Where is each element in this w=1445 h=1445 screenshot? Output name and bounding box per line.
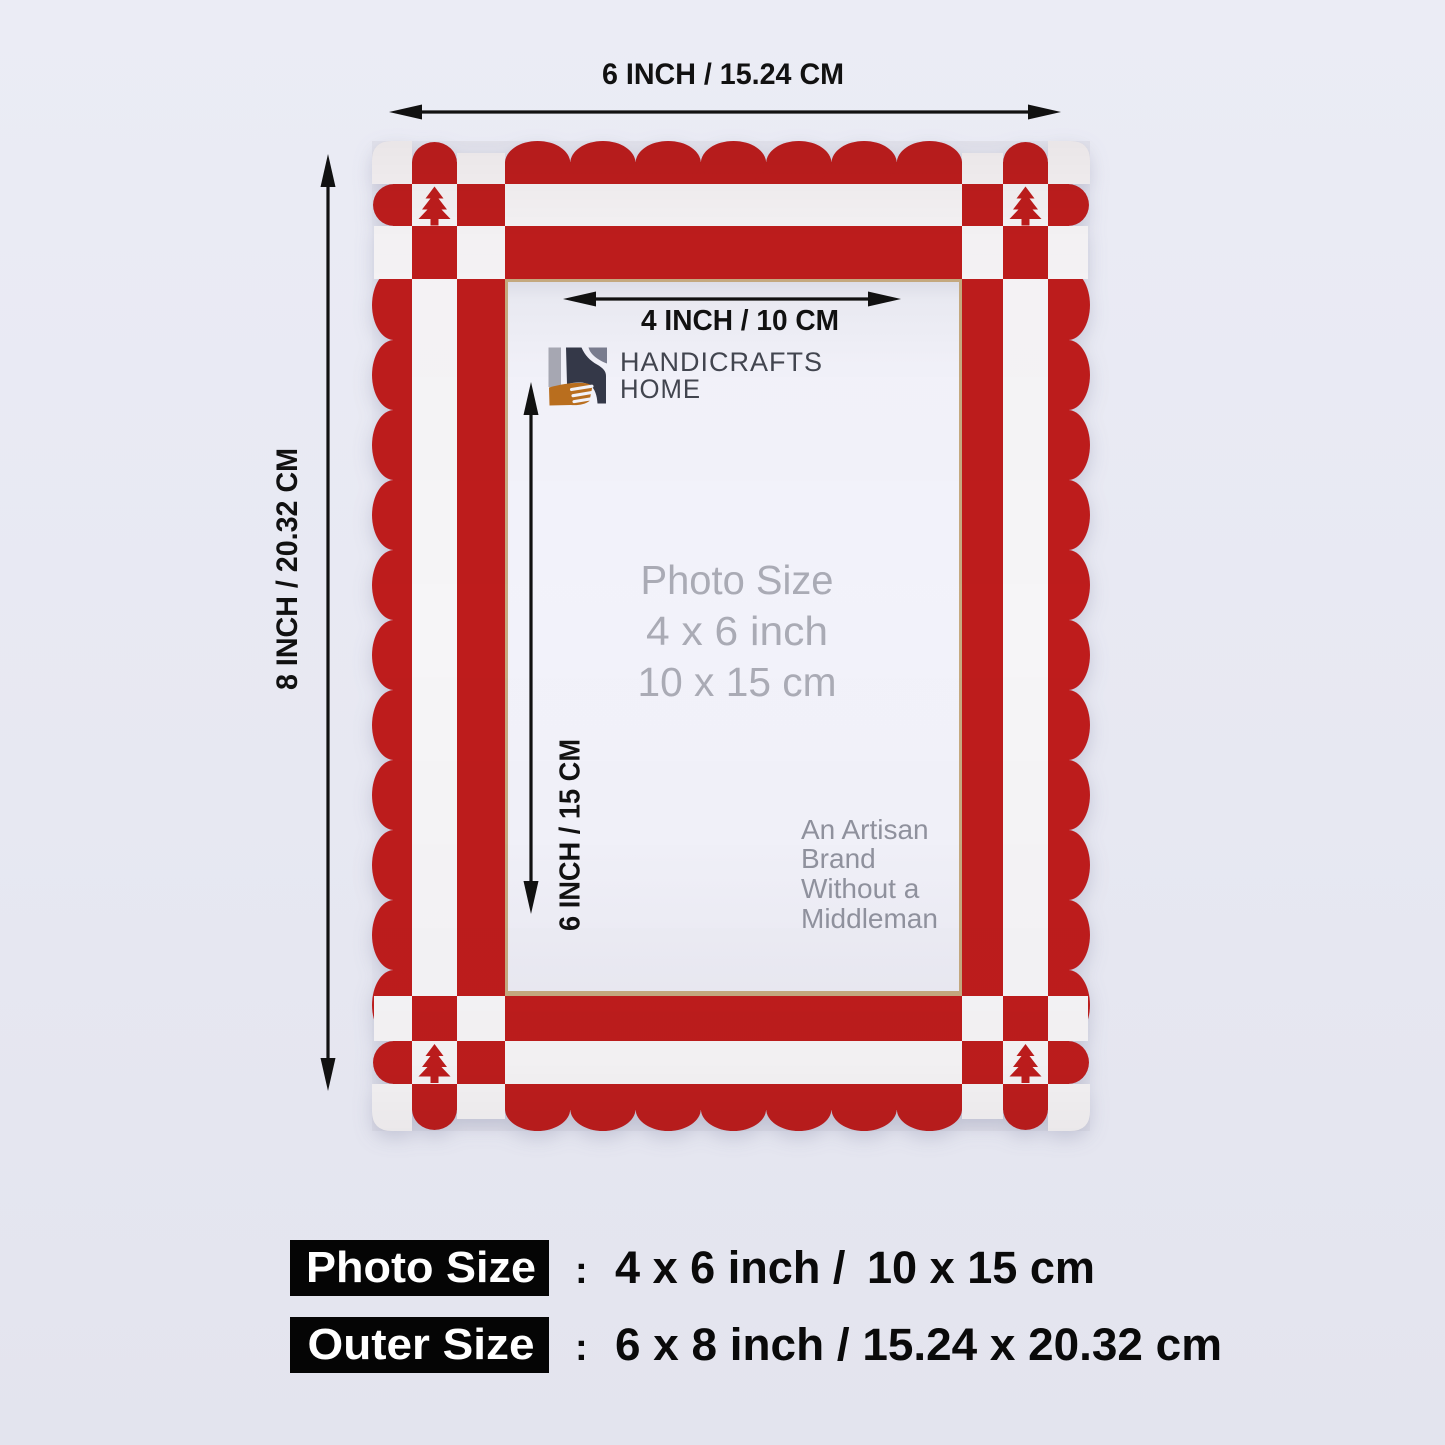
svg-text:Photo Size: Photo Size [306,1243,536,1292]
svg-text:10 x 15 cm: 10 x 15 cm [638,659,837,705]
svg-text:Photo Size: Photo Size [641,557,834,603]
svg-text:HOME: HOME [620,374,701,404]
svg-text:Middleman: Middleman [801,903,938,934]
svg-text:An Artisan: An Artisan [801,814,929,845]
svg-text:6 x 8 inch / 15.24 x 20.32 cm: 6 x 8 inch / 15.24 x 20.32 cm [615,1319,1222,1370]
svg-text:HANDICRAFTS: HANDICRAFTS [620,347,823,377]
svg-text:Without a: Without a [801,873,920,904]
svg-text:Brand: Brand [801,843,876,874]
svg-text:Outer Size: Outer Size [308,1320,535,1369]
svg-text:4 x 6 inch / 10 x 15 cm: 4 x 6 inch / 10 x 15 cm [615,1242,1095,1293]
svg-text:4 INCH / 10 CM: 4 INCH / 10 CM [641,305,839,337]
svg-text:6 INCH / 15 CM: 6 INCH / 15 CM [555,739,587,931]
svg-text:4 x 6 inch: 4 x 6 inch [646,608,828,654]
svg-text::: : [575,1327,588,1369]
svg-text:8 INCH / 20.32 CM: 8 INCH / 20.32 CM [271,448,304,690]
svg-text::: : [575,1250,588,1292]
svg-text:6 INCH / 15.24 CM: 6 INCH / 15.24 CM [602,58,844,91]
